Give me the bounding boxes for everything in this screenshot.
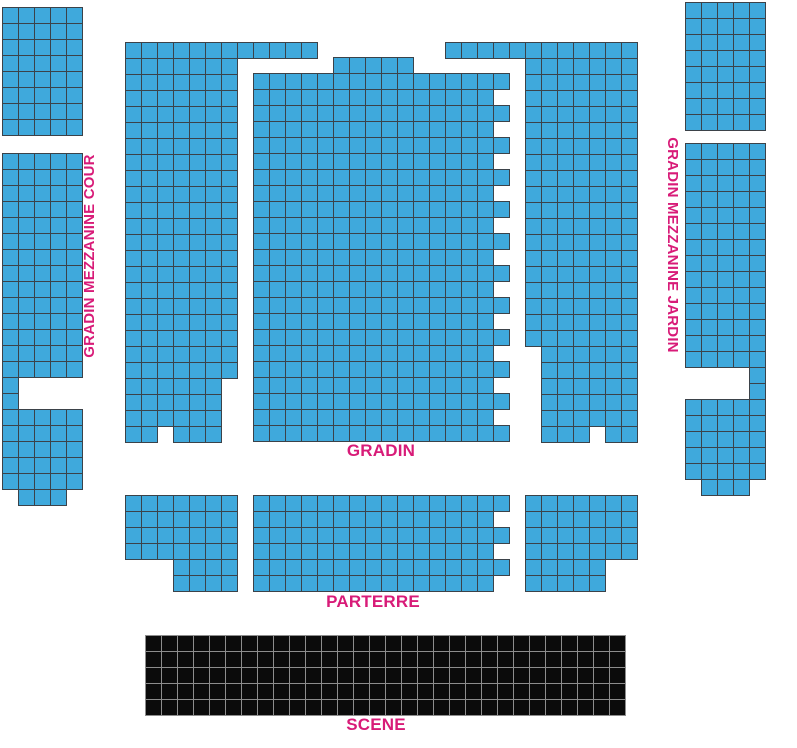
- stage-cell: [321, 699, 338, 716]
- stage-cell: [465, 683, 482, 700]
- stage-cell: [433, 651, 450, 668]
- stage-cell: [433, 667, 450, 684]
- stage-cell: [225, 635, 242, 652]
- stage-cell: [497, 635, 514, 652]
- stage-cell: [449, 635, 466, 652]
- stage-cell: [225, 651, 242, 668]
- stage-cell: [289, 699, 306, 716]
- stage-cell: [257, 651, 274, 668]
- stage-cell: [401, 635, 418, 652]
- stage-cell: [289, 635, 306, 652]
- stage-cell: [161, 683, 178, 700]
- stage-cell: [561, 683, 578, 700]
- stage-cell: [433, 699, 450, 716]
- stage-cell: [545, 651, 562, 668]
- stage-cell: [609, 683, 626, 700]
- stage-cell: [193, 683, 210, 700]
- label-scene: SCENE: [276, 716, 476, 734]
- stage-cell: [337, 635, 354, 652]
- stage-cell: [305, 651, 322, 668]
- stage-cell: [289, 667, 306, 684]
- stage-cell: [561, 667, 578, 684]
- stage-cell: [385, 699, 402, 716]
- stage-cell: [369, 667, 386, 684]
- stage-cell: [529, 699, 546, 716]
- stage-cell: [577, 635, 594, 652]
- stage-cell: [193, 667, 210, 684]
- stage-cell: [497, 651, 514, 668]
- stage-cell: [545, 699, 562, 716]
- stage-cell: [241, 651, 258, 668]
- stage-cell: [577, 651, 594, 668]
- stage-cell: [369, 683, 386, 700]
- stage-cell: [273, 699, 290, 716]
- stage-cell: [257, 667, 274, 684]
- stage-cell: [609, 635, 626, 652]
- stage-cell: [593, 667, 610, 684]
- stage-cell: [401, 699, 418, 716]
- stage-cell: [305, 683, 322, 700]
- stage-cell: [497, 683, 514, 700]
- stage-cell: [353, 635, 370, 652]
- stage-cell: [465, 667, 482, 684]
- stage-cell: [241, 699, 258, 716]
- stage-cell: [513, 651, 530, 668]
- stage-cell: [449, 651, 466, 668]
- stage-cell: [305, 699, 322, 716]
- stage-cell: [369, 699, 386, 716]
- stage-cell: [257, 683, 274, 700]
- stage-cell: [305, 667, 322, 684]
- stage-cell: [273, 683, 290, 700]
- stage-cell: [385, 683, 402, 700]
- stage-cell: [145, 683, 162, 700]
- stage-cell: [337, 667, 354, 684]
- stage-cell: [417, 651, 434, 668]
- stage-cell: [177, 683, 194, 700]
- stage-cell: [177, 635, 194, 652]
- stage-cell: [353, 651, 370, 668]
- stage-cell: [593, 635, 610, 652]
- stage-cell: [481, 699, 498, 716]
- stage-cell: [529, 651, 546, 668]
- stage-cell: [337, 683, 354, 700]
- stage-cell: [209, 651, 226, 668]
- stage-cell: [481, 667, 498, 684]
- stage-cell: [545, 683, 562, 700]
- stage-cell: [369, 651, 386, 668]
- stage-cell: [321, 651, 338, 668]
- stage-cell: [465, 699, 482, 716]
- stage-cell: [401, 651, 418, 668]
- stage-cell: [321, 667, 338, 684]
- stage-cell: [593, 683, 610, 700]
- stage-cell: [241, 635, 258, 652]
- stage-cell: [273, 635, 290, 652]
- stage-cell: [481, 683, 498, 700]
- stage-cell: [321, 635, 338, 652]
- stage-cell: [577, 683, 594, 700]
- stage-cell: [145, 699, 162, 716]
- stage-cell: [577, 667, 594, 684]
- stage-cell: [593, 651, 610, 668]
- stage-cell: [497, 699, 514, 716]
- stage-cell: [337, 651, 354, 668]
- stage-cell: [161, 635, 178, 652]
- stage-cell: [401, 683, 418, 700]
- stage-cell: [385, 651, 402, 668]
- stage-cell: [209, 683, 226, 700]
- stage-cell: [337, 699, 354, 716]
- stage-cell: [417, 683, 434, 700]
- stage-cell: [321, 683, 338, 700]
- stage-cell: [161, 667, 178, 684]
- stage-cell: [177, 699, 194, 716]
- stage-cell: [417, 699, 434, 716]
- stage-cell: [353, 667, 370, 684]
- stage-cell: [209, 635, 226, 652]
- stage-cell: [369, 635, 386, 652]
- stage-cell: [417, 667, 434, 684]
- stage-cell: [609, 699, 626, 716]
- stage-cell: [225, 683, 242, 700]
- stage-cell: [177, 667, 194, 684]
- stage-cell: [449, 699, 466, 716]
- stage-cell: [433, 635, 450, 652]
- stage-cell: [353, 683, 370, 700]
- stage-cell: [177, 651, 194, 668]
- stage-cell: [353, 699, 370, 716]
- stage-cell: [225, 699, 242, 716]
- stage-cell: [193, 699, 210, 716]
- stage-cell: [561, 699, 578, 716]
- stage-cell: [561, 651, 578, 668]
- stage-cell: [273, 651, 290, 668]
- stage-cell: [513, 683, 530, 700]
- stage-cell: [513, 635, 530, 652]
- stage-cell: [241, 667, 258, 684]
- stage-cell: [465, 635, 482, 652]
- label-gradin-mezzanine-cour: GRADIN MEZZANINE COUR: [80, 126, 100, 386]
- stage-cell: [545, 635, 562, 652]
- seating-plan: GRADIN MEZZANINE COUR GRADIN MEZZANINE J…: [0, 0, 797, 748]
- stage-cell: [161, 699, 178, 716]
- stage-cell: [225, 667, 242, 684]
- stage-cell: [481, 651, 498, 668]
- stage-cell: [209, 667, 226, 684]
- stage-cell: [257, 635, 274, 652]
- stage-cell: [529, 635, 546, 652]
- stage-cell: [417, 635, 434, 652]
- stage-cell: [289, 683, 306, 700]
- stage-cell: [593, 699, 610, 716]
- stage-cell: [513, 699, 530, 716]
- stage-cell: [545, 667, 562, 684]
- stage-cell: [513, 667, 530, 684]
- stage-cell: [209, 699, 226, 716]
- stage-cell: [433, 683, 450, 700]
- stage-cell: [193, 635, 210, 652]
- stage-cell: [497, 667, 514, 684]
- stage-cell: [465, 651, 482, 668]
- stage-cell: [481, 635, 498, 652]
- stage-cell: [145, 667, 162, 684]
- stage-cell: [257, 699, 274, 716]
- label-parterre: PARTERRE: [273, 593, 473, 611]
- stage-cell: [273, 667, 290, 684]
- stage-cell: [241, 683, 258, 700]
- stage-cell: [145, 651, 162, 668]
- stage-cell: [561, 635, 578, 652]
- stage-cell: [161, 651, 178, 668]
- stage-cell: [193, 651, 210, 668]
- stage-cell: [609, 651, 626, 668]
- stage-cell: [145, 635, 162, 652]
- stage-cell: [577, 699, 594, 716]
- stage-cell: [609, 667, 626, 684]
- label-gradin: GRADIN: [281, 442, 481, 460]
- stage-cell: [449, 667, 466, 684]
- stage-cell: [385, 667, 402, 684]
- stage-cell: [401, 667, 418, 684]
- stage-cell: [449, 683, 466, 700]
- stage-cell: [289, 651, 306, 668]
- label-gradin-mezzanine-jardin: GRADIN MEZZANINE JARDIN: [662, 105, 682, 385]
- stage-cell: [529, 667, 546, 684]
- stage-cell: [305, 635, 322, 652]
- stage-cell: [529, 683, 546, 700]
- stage-cell: [385, 635, 402, 652]
